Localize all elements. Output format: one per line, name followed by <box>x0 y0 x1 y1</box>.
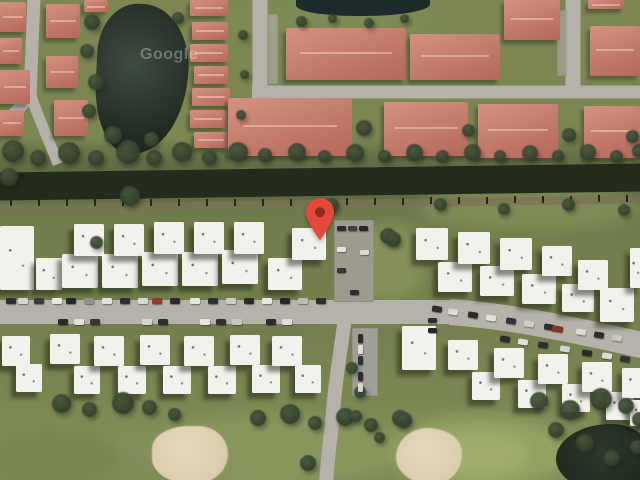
car <box>52 298 62 304</box>
satellite-map-canvas[interactable]: Google <box>0 0 640 480</box>
car <box>102 298 112 304</box>
tree <box>552 150 564 162</box>
car <box>432 305 443 312</box>
white-building <box>74 366 100 394</box>
road-center-vertical <box>326 300 347 480</box>
white-building <box>622 368 640 398</box>
fence-post <box>486 197 488 204</box>
car <box>358 383 363 392</box>
car <box>428 318 437 323</box>
sand-bunker <box>152 426 228 480</box>
grass-patch <box>150 415 400 480</box>
tree <box>80 44 94 58</box>
car <box>448 308 459 315</box>
white-building <box>416 228 448 260</box>
tree <box>296 16 307 27</box>
tree <box>434 198 447 211</box>
fence-post <box>346 198 348 205</box>
white-building <box>182 252 218 286</box>
tree <box>168 408 181 421</box>
white-building <box>268 258 302 290</box>
car <box>538 341 549 348</box>
car <box>142 319 152 325</box>
white-building <box>252 365 280 393</box>
fence-post <box>598 195 600 202</box>
water-body <box>0 163 640 200</box>
red-roof-building <box>0 110 24 136</box>
layer-red-roof-buildings <box>0 0 640 480</box>
layer-fence-posts <box>0 0 640 480</box>
tree <box>400 14 409 23</box>
tree <box>104 126 122 144</box>
red-roof-building <box>0 70 30 104</box>
white-building <box>194 222 224 254</box>
road-top-left-branch-a <box>0 96 31 132</box>
red-roof-building <box>84 0 108 12</box>
tree <box>378 150 391 163</box>
car <box>518 338 529 345</box>
fence-post <box>290 199 292 206</box>
red-roof-building <box>410 34 500 80</box>
red-roof-building <box>0 38 22 64</box>
layer-water <box>0 0 640 480</box>
tree <box>590 388 612 410</box>
tree <box>356 120 372 136</box>
white-building <box>208 366 236 394</box>
grass-patch <box>210 0 440 40</box>
tree <box>386 232 401 247</box>
white-building <box>538 354 568 384</box>
tree <box>336 408 354 426</box>
car <box>226 298 236 304</box>
tree <box>172 142 192 162</box>
tree <box>30 150 46 166</box>
red-roof-building <box>54 100 88 136</box>
grass-patch <box>355 225 425 300</box>
car <box>316 298 326 304</box>
car <box>358 356 363 365</box>
pin-dot <box>315 207 325 217</box>
car <box>120 298 130 304</box>
car <box>84 298 94 304</box>
car <box>576 328 587 335</box>
tree <box>562 198 575 211</box>
tree <box>228 142 248 162</box>
road-top-left-vertical <box>30 0 34 98</box>
white-building <box>494 348 524 378</box>
white-building <box>163 366 191 394</box>
fence-post <box>38 199 40 206</box>
car <box>582 349 593 356</box>
tree <box>142 400 157 415</box>
layer-sand-bunkers <box>0 0 640 480</box>
car <box>337 247 346 252</box>
tree <box>202 150 217 165</box>
tree <box>236 110 246 120</box>
car <box>74 319 84 325</box>
tree <box>364 18 374 28</box>
white-building <box>142 252 178 286</box>
car <box>152 298 162 304</box>
car <box>200 319 210 325</box>
car <box>232 319 242 325</box>
tree <box>618 398 634 414</box>
car <box>468 311 479 318</box>
fence-post <box>542 196 544 203</box>
car <box>506 317 517 324</box>
fence-post <box>514 196 516 203</box>
parking-lot <box>268 14 278 84</box>
white-building <box>600 288 634 322</box>
layer-roads <box>0 0 640 480</box>
tree <box>308 416 322 430</box>
tree <box>88 150 104 166</box>
car <box>190 298 200 304</box>
red-roof-building <box>192 22 228 40</box>
location-pin[interactable] <box>306 198 334 240</box>
parking-lot <box>557 10 567 76</box>
car <box>348 226 357 231</box>
parking-lot <box>352 328 378 396</box>
water-body <box>296 0 430 16</box>
tree <box>354 386 366 398</box>
tree <box>250 410 266 426</box>
white-building <box>102 254 138 288</box>
white-building <box>630 400 640 426</box>
white-building <box>402 326 436 370</box>
tree <box>530 392 548 410</box>
tree <box>346 144 364 162</box>
layer-trees <box>0 0 640 480</box>
white-building <box>62 254 98 288</box>
tree <box>238 30 248 40</box>
car <box>552 325 564 333</box>
fence-post <box>206 199 208 206</box>
tree <box>116 140 140 164</box>
red-roof-building <box>478 104 558 158</box>
car <box>244 298 254 304</box>
car <box>358 345 363 354</box>
white-building <box>16 364 42 392</box>
white-building <box>438 262 472 292</box>
red-roof-building <box>194 66 228 84</box>
tree <box>632 412 640 427</box>
tree <box>632 144 640 158</box>
tree <box>580 144 596 160</box>
car <box>337 268 346 273</box>
car <box>280 298 290 304</box>
tree <box>318 150 331 163</box>
white-building <box>562 384 590 412</box>
fence-post <box>234 199 236 206</box>
tree <box>82 402 97 417</box>
white-building <box>118 366 146 394</box>
tree <box>58 142 80 164</box>
white-building <box>36 258 62 290</box>
red-roof-building <box>228 98 352 156</box>
tree <box>240 70 249 79</box>
tree <box>258 148 272 162</box>
white-building <box>582 362 612 392</box>
car <box>6 298 16 304</box>
tree <box>604 450 620 466</box>
car <box>486 314 497 321</box>
red-roof-building <box>194 132 228 148</box>
tree <box>146 150 162 166</box>
grass-patch <box>0 428 120 480</box>
car <box>524 320 535 327</box>
tree <box>396 412 412 428</box>
fence-post <box>430 197 432 204</box>
tree <box>346 362 358 374</box>
tree <box>82 104 96 118</box>
road-main-slope-right <box>450 312 640 346</box>
white-building <box>184 336 214 366</box>
tree <box>0 168 18 186</box>
red-roof-building <box>46 56 78 88</box>
car <box>138 298 148 304</box>
tree <box>494 150 506 162</box>
car <box>594 331 605 338</box>
tree <box>52 394 71 413</box>
fence-post <box>122 199 124 206</box>
grass-patch <box>390 415 570 480</box>
tree <box>562 128 576 142</box>
tree <box>84 14 100 30</box>
car <box>170 298 180 304</box>
red-roof-building <box>588 0 624 9</box>
white-building <box>522 274 556 304</box>
tree <box>112 392 134 414</box>
car <box>359 226 368 231</box>
car <box>34 298 44 304</box>
white-building <box>630 248 640 288</box>
white-building <box>230 335 260 365</box>
water-body <box>92 2 192 157</box>
tree <box>406 144 423 161</box>
car <box>66 298 76 304</box>
car <box>350 290 359 295</box>
tree <box>2 140 24 162</box>
fence-post <box>178 199 180 206</box>
car <box>360 250 369 255</box>
red-roof-building <box>190 110 226 128</box>
white-building <box>518 380 546 408</box>
tree <box>288 143 306 161</box>
white-building <box>0 226 34 290</box>
fence-post <box>94 199 96 206</box>
water-body <box>556 424 640 480</box>
car <box>544 323 555 330</box>
tree <box>576 434 594 452</box>
car <box>500 335 511 342</box>
google-watermark: Google <box>140 46 198 64</box>
car <box>602 352 613 359</box>
white-building <box>222 250 258 284</box>
tree <box>462 124 475 137</box>
white-building <box>140 335 170 365</box>
tree <box>522 145 538 161</box>
pin-body <box>306 198 334 240</box>
white-building <box>50 334 80 364</box>
red-roof-building <box>590 26 640 76</box>
red-roof-building <box>192 88 230 106</box>
layer-white-buildings <box>0 0 640 480</box>
fence-post <box>458 197 460 204</box>
tree <box>90 236 103 249</box>
tree <box>88 74 104 90</box>
car <box>298 298 308 304</box>
road-top-left-branch-b <box>31 96 58 164</box>
white-building <box>295 365 321 393</box>
white-building <box>114 224 144 256</box>
car <box>620 355 631 362</box>
red-roof-building <box>286 28 406 80</box>
red-roof-building <box>190 0 228 16</box>
tree <box>300 455 316 471</box>
tree <box>120 186 140 206</box>
fence-post <box>626 195 628 202</box>
tree <box>630 440 640 454</box>
tree <box>364 418 378 432</box>
tree <box>436 150 449 163</box>
sand-bunker <box>396 428 462 480</box>
layer-parking <box>0 0 640 480</box>
car <box>560 345 571 352</box>
white-building <box>94 336 124 366</box>
layer-cars <box>0 0 640 480</box>
fence-post <box>10 199 12 206</box>
white-building <box>272 336 302 366</box>
car <box>612 334 623 341</box>
tree <box>350 410 362 422</box>
tree <box>374 432 385 443</box>
car <box>158 319 168 325</box>
car <box>266 319 276 325</box>
fence-post <box>150 199 152 206</box>
red-roof-building <box>584 106 640 158</box>
tree <box>498 203 510 215</box>
red-roof-building <box>384 102 468 156</box>
white-building <box>562 284 594 312</box>
car <box>262 298 272 304</box>
white-building <box>578 260 608 290</box>
white-building <box>74 224 104 256</box>
white-building <box>480 266 514 296</box>
white-building <box>500 238 532 270</box>
tree <box>626 130 639 143</box>
fence-post <box>66 199 68 206</box>
car <box>358 334 363 343</box>
grass-patch <box>60 300 320 330</box>
tree <box>280 404 300 424</box>
tree <box>464 144 481 161</box>
car <box>208 298 218 304</box>
red-roof-building <box>46 4 80 38</box>
car <box>18 298 28 304</box>
fence-post <box>570 196 572 203</box>
layer-grass-patches <box>0 0 640 480</box>
white-building <box>448 340 478 370</box>
car <box>428 328 437 333</box>
white-building <box>2 336 30 366</box>
white-building <box>234 222 264 254</box>
tree <box>560 400 580 420</box>
tree <box>144 132 159 147</box>
car <box>358 372 363 381</box>
red-roof-building <box>504 0 560 40</box>
tree <box>380 228 396 244</box>
fence-post <box>262 199 264 206</box>
car <box>58 319 68 325</box>
white-building <box>458 232 490 264</box>
grass-patch <box>430 432 530 477</box>
tree <box>328 14 337 23</box>
fence-post <box>374 198 376 205</box>
white-building <box>472 372 500 400</box>
tree <box>618 204 630 216</box>
red-roof-building <box>0 2 26 32</box>
grass-patch <box>420 185 640 230</box>
car <box>216 319 226 325</box>
white-building <box>154 222 184 254</box>
fence-post <box>402 198 404 205</box>
car <box>337 226 346 231</box>
tree <box>172 12 184 24</box>
tree <box>548 422 564 438</box>
tree <box>610 150 623 163</box>
white-building <box>606 392 634 420</box>
car <box>282 319 292 325</box>
car <box>90 319 100 325</box>
parking-lot <box>334 220 374 302</box>
white-building <box>542 246 572 276</box>
tree <box>392 410 408 426</box>
